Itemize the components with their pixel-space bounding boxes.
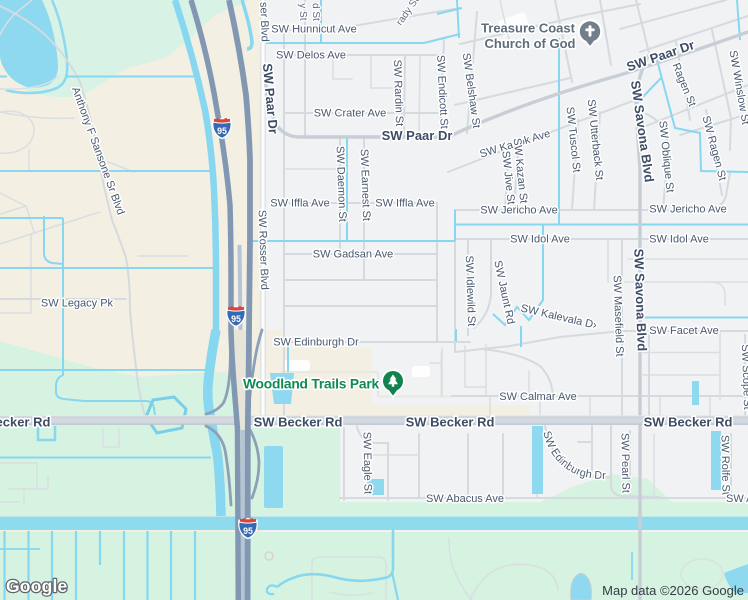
svg-text:SW Becker Rd: SW Becker Rd — [406, 415, 495, 430]
svg-text:SW Paar Dr: SW Paar Dr — [382, 128, 453, 143]
svg-text:SW Idol Ave: SW Idol Ave — [649, 234, 709, 246]
svg-text:SW Jericho Ave: SW Jericho Ave — [649, 204, 726, 216]
svg-text:SW Earnest St: SW Earnest St — [358, 149, 373, 222]
svg-text:ser Blvd: ser Blvd — [257, 2, 270, 42]
svg-text:SW Jericho Ave: SW Jericho Ave — [480, 205, 557, 217]
svg-text:Map data ©2026 Google: Map data ©2026 Google — [602, 583, 744, 598]
svg-text:Woodland Trails Park: Woodland Trails Park — [243, 377, 380, 392]
svg-text:SW Iffla Ave: SW Iffla Ave — [270, 198, 330, 210]
svg-text:SW Abacus Ave: SW Abacus Ave — [426, 493, 504, 505]
svg-text:SW Delos Ave: SW Delos Ave — [276, 50, 346, 62]
svg-text:Church of God: Church of God — [485, 36, 576, 51]
svg-text:SW Eagle St: SW Eagle St — [360, 432, 373, 495]
svg-text:SW Becker Rd: SW Becker Rd — [644, 415, 733, 430]
svg-text:SW Idol Ave: SW Idol Ave — [510, 234, 570, 246]
svg-text:SW Legacy Pk: SW Legacy Pk — [41, 298, 114, 310]
svg-text:d St: d St — [310, 3, 322, 21]
svg-text:SW Iffla Ave: SW Iffla Ave — [375, 198, 435, 210]
svg-text:SW Hunnicut Ave: SW Hunnicut Ave — [271, 24, 356, 36]
svg-text:y St: y St — [297, 3, 309, 21]
svg-text:SW Pearl St: SW Pearl St — [618, 433, 631, 493]
svg-text:SW Rolfe St: SW Rolfe St — [718, 435, 731, 495]
svg-text:SW Facet Ave: SW Facet Ave — [649, 325, 719, 337]
svg-text:SW Rardin St: SW Rardin St — [391, 59, 405, 126]
svg-text:Google: Google — [6, 576, 68, 596]
svg-text:SW Idlewild St: SW Idlewild St — [463, 255, 477, 326]
svg-text:SW Abacus Ave: SW Abacus Ave — [726, 493, 748, 505]
svg-text:SW Gadsan Ave: SW Gadsan Ave — [313, 249, 394, 261]
svg-text:SW Becker Rd: SW Becker Rd — [254, 415, 343, 430]
svg-text:SW Becker Rd: SW Becker Rd — [0, 415, 50, 430]
svg-text:SW Crater Ave: SW Crater Ave — [314, 108, 387, 120]
svg-text:SW Edinburgh Dr: SW Edinburgh Dr — [273, 337, 359, 349]
svg-text:SW Calmar Ave: SW Calmar Ave — [499, 391, 576, 403]
svg-text:Treasure Coast: Treasure Coast — [481, 21, 576, 36]
